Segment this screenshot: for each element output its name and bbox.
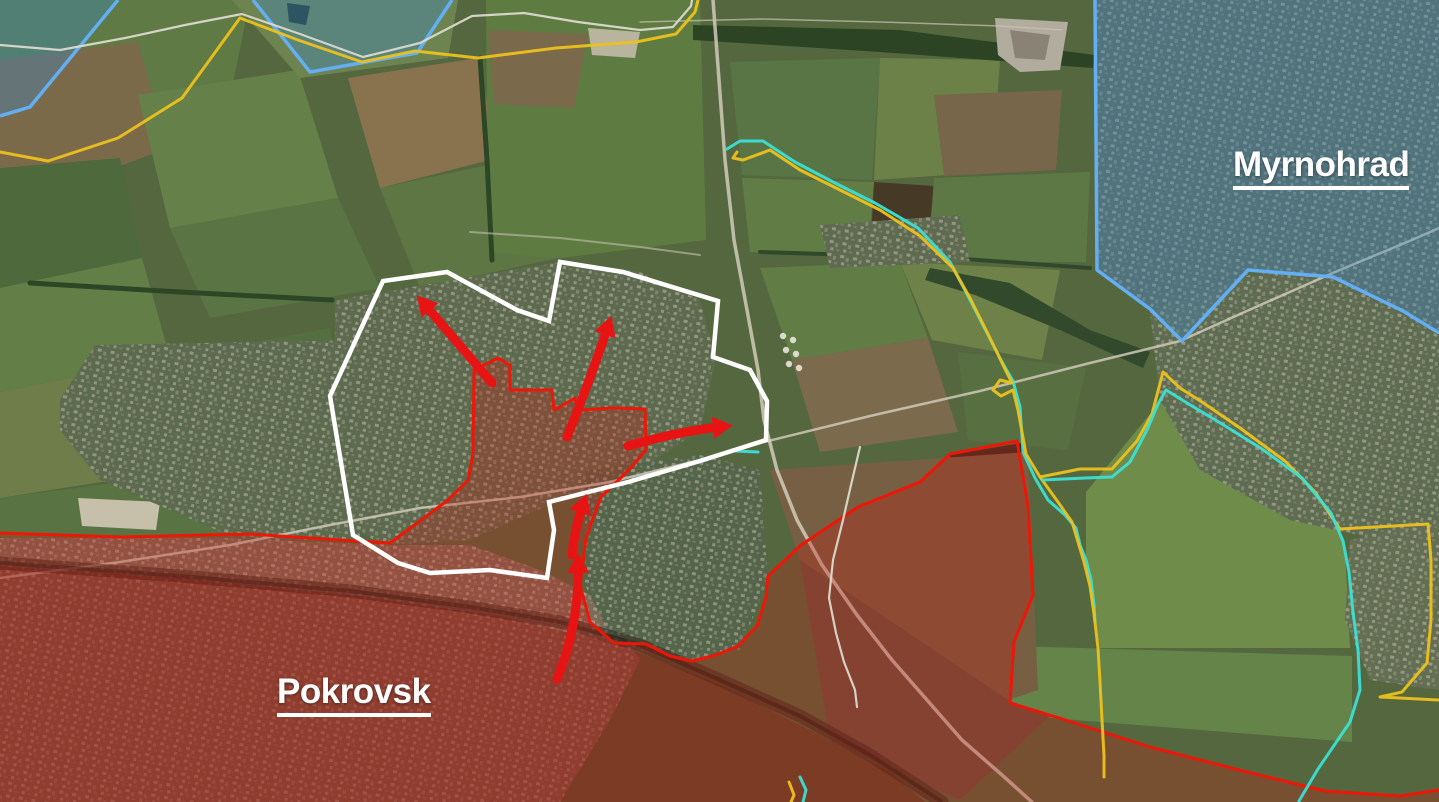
map-viewport[interactable]: Pokrovsk Myrnohrad (0, 0, 1439, 802)
city-label-myrnohrad: Myrnohrad (1233, 147, 1409, 190)
city-label-pokrovsk: Pokrovsk (277, 674, 431, 717)
